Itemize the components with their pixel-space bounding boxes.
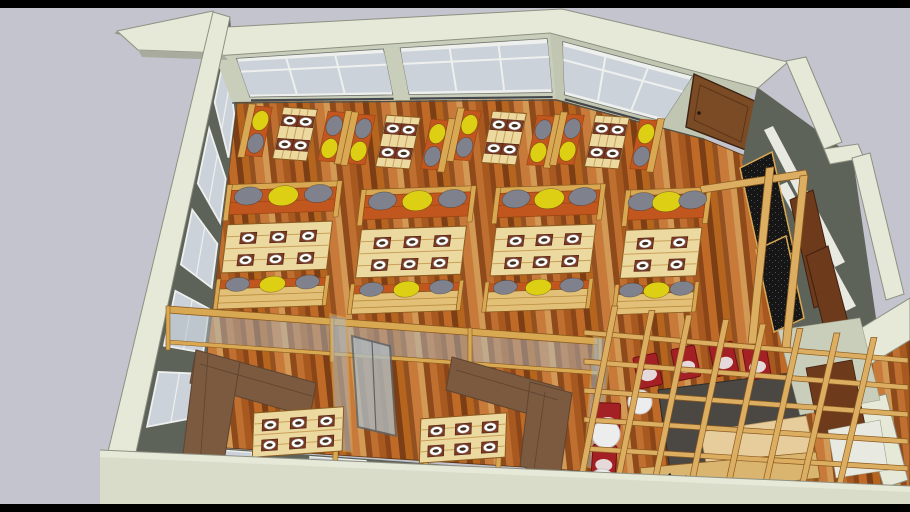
window-table-set — [446, 108, 561, 169]
partition-post — [166, 306, 170, 350]
viewer-stage — [0, 0, 910, 512]
booth — [611, 187, 712, 315]
window-table-set — [340, 112, 455, 173]
booth — [212, 181, 342, 310]
model-viewport[interactable] — [0, 0, 910, 512]
letterbox-bottom — [0, 504, 910, 512]
letterbox-top — [0, 0, 910, 8]
door-handle — [697, 111, 701, 115]
window-table-set — [549, 112, 664, 173]
booth — [481, 184, 606, 312]
window-table-set — [237, 104, 352, 165]
booths — [212, 181, 712, 315]
booth — [346, 186, 476, 315]
